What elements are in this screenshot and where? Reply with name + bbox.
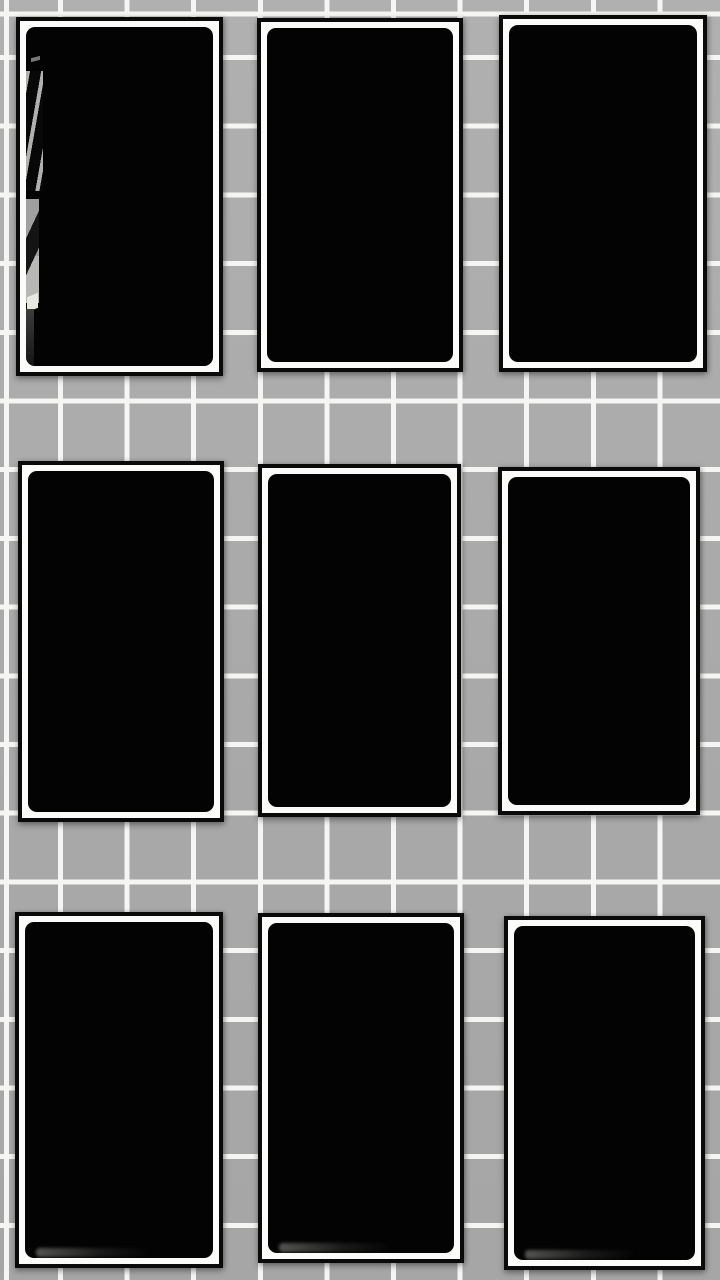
frame-mat (22, 465, 220, 818)
artwork (268, 923, 454, 1253)
framed-print-9 (504, 916, 705, 1270)
framed-print-7 (15, 912, 223, 1268)
framed-print-1 (16, 17, 223, 376)
artwork (28, 471, 214, 812)
artwork-detail-sliver-stripes (26, 71, 43, 191)
reflection-smear (36, 1248, 153, 1257)
artwork (268, 474, 451, 807)
frame-mat (20, 21, 219, 372)
artwork (26, 27, 213, 366)
artwork (509, 25, 697, 362)
frame-mat (503, 19, 703, 368)
reflection-smear (279, 1243, 394, 1252)
artwork-detail-sliver-streak (26, 309, 34, 366)
artwork (508, 477, 690, 805)
framed-print-2 (257, 18, 463, 372)
framed-print-4 (18, 461, 224, 822)
reflection-smear (525, 1250, 637, 1259)
frame-mat (262, 917, 460, 1259)
framed-print-6 (498, 467, 700, 815)
artwork-detail-sliver-dash (31, 56, 40, 62)
framed-print-5 (258, 464, 461, 817)
frame-mat (502, 471, 696, 811)
tiled-wall (0, 0, 720, 1280)
artwork (25, 922, 213, 1258)
frame-mat (19, 916, 219, 1264)
artwork (267, 28, 453, 362)
frame-mat (262, 468, 457, 813)
framed-print-3 (499, 15, 707, 372)
artwork (514, 926, 695, 1260)
frame-mat (261, 22, 459, 368)
artwork-detail-sliver-column (26, 199, 39, 303)
frame-mat (508, 920, 701, 1266)
framed-print-8 (258, 913, 464, 1263)
